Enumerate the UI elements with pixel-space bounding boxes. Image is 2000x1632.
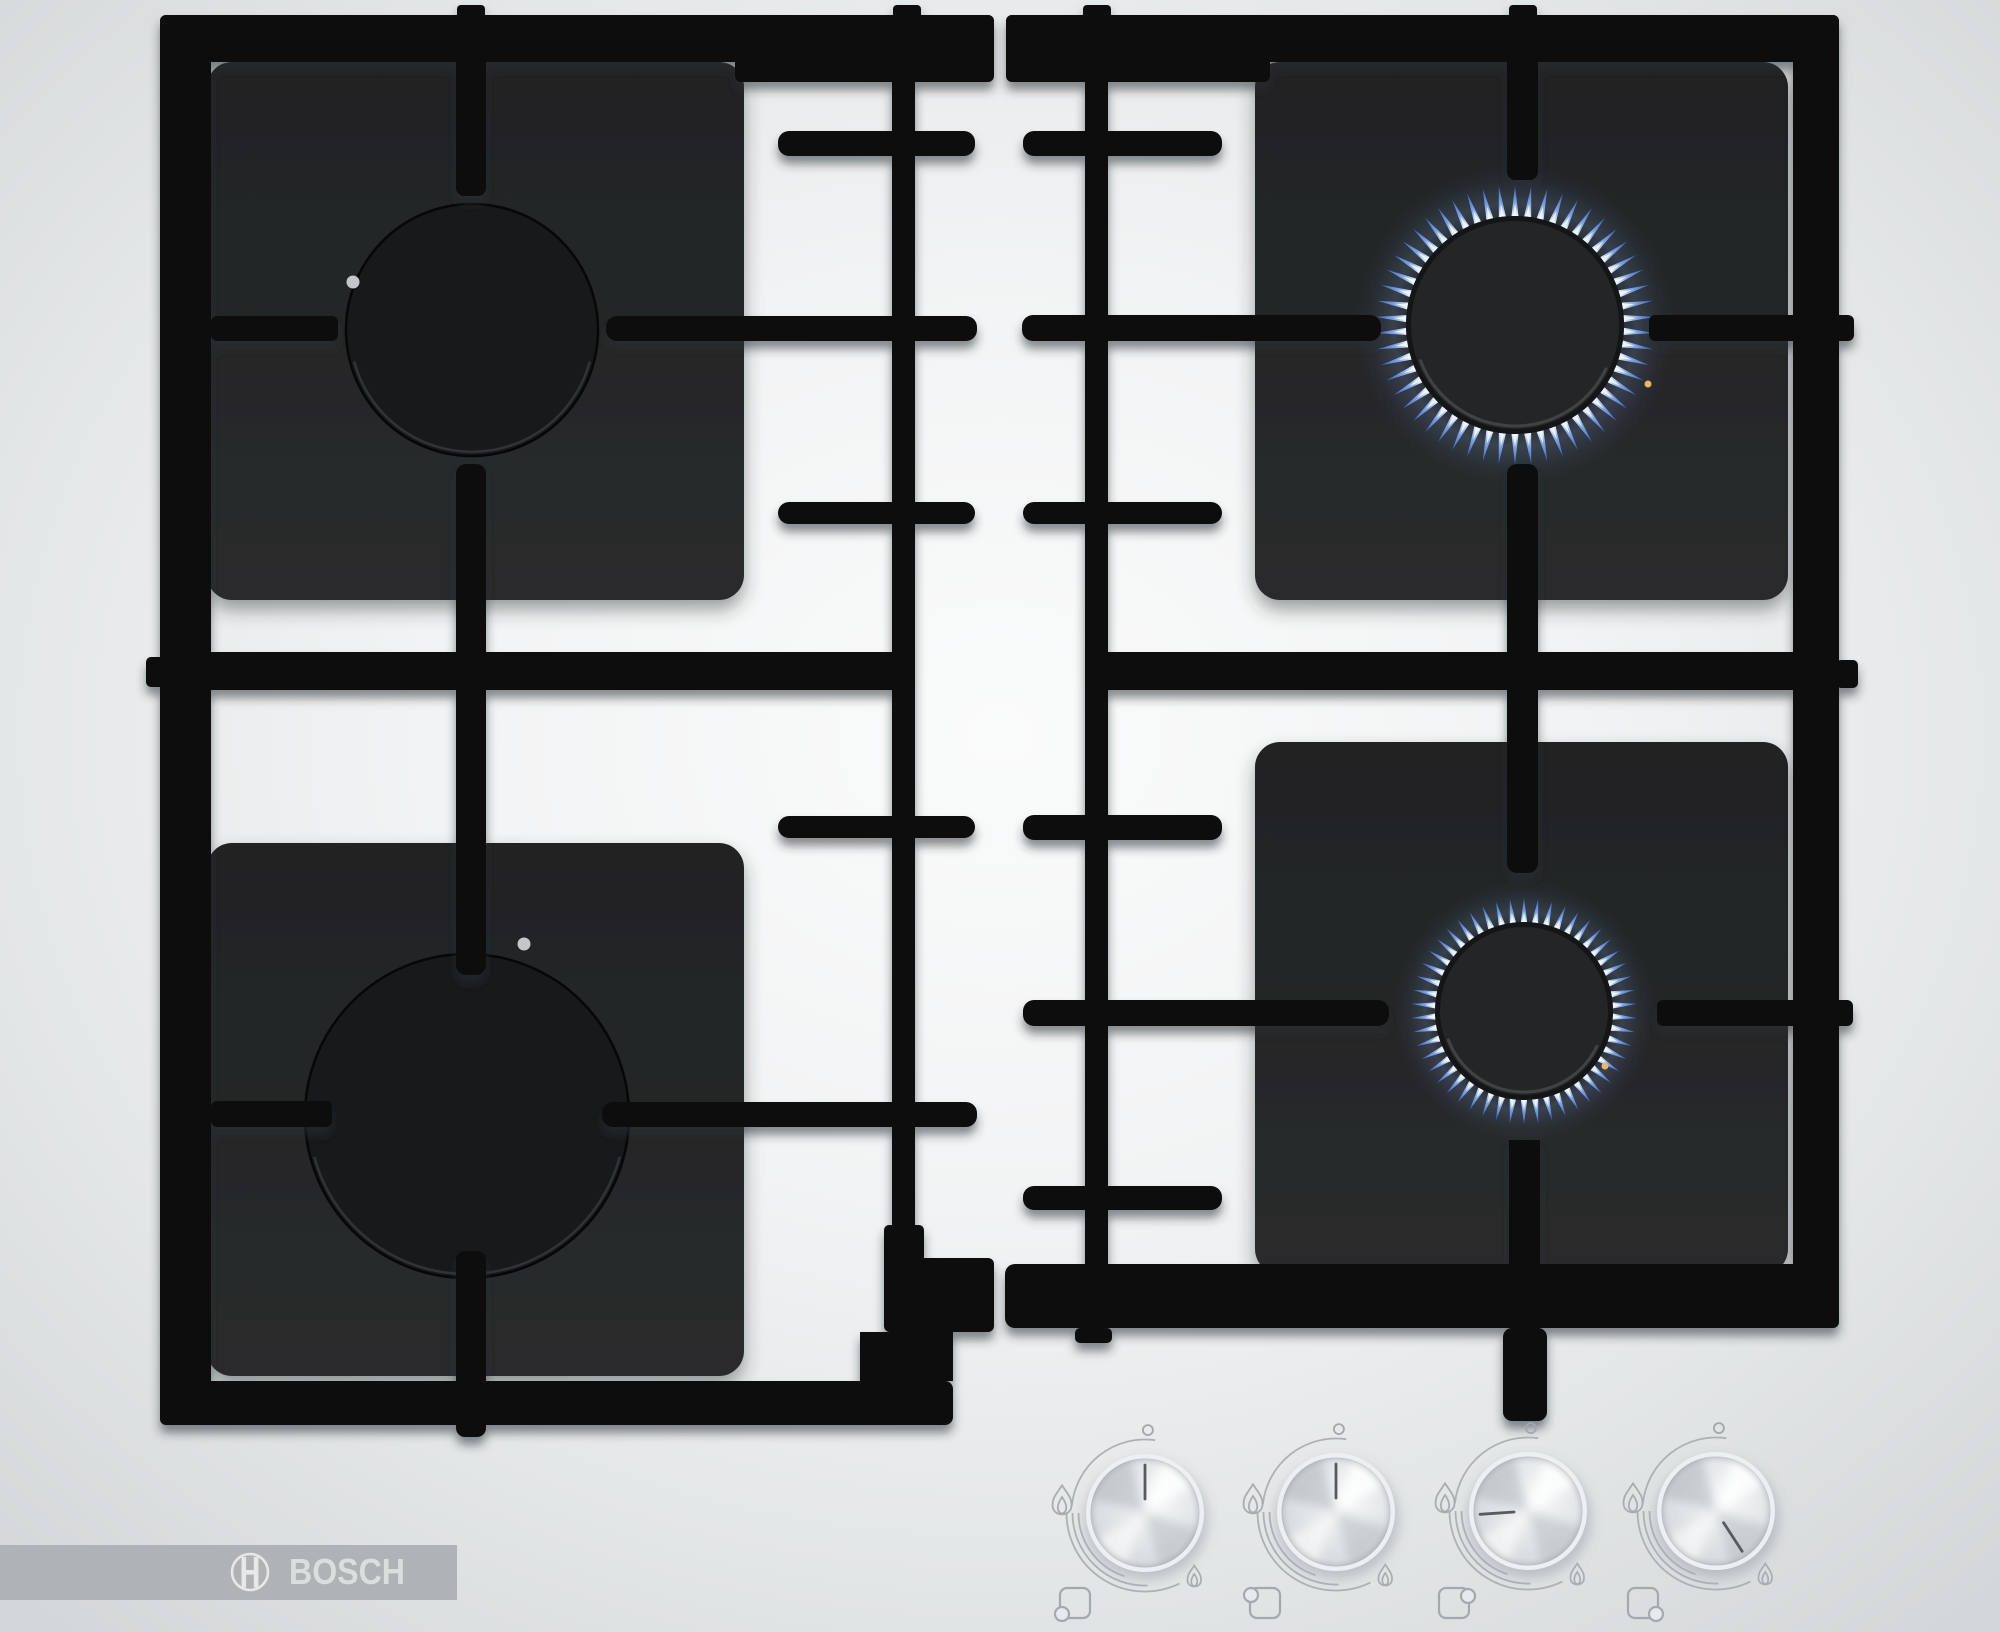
svg-text:BOSCH: BOSCH (289, 1551, 405, 1592)
